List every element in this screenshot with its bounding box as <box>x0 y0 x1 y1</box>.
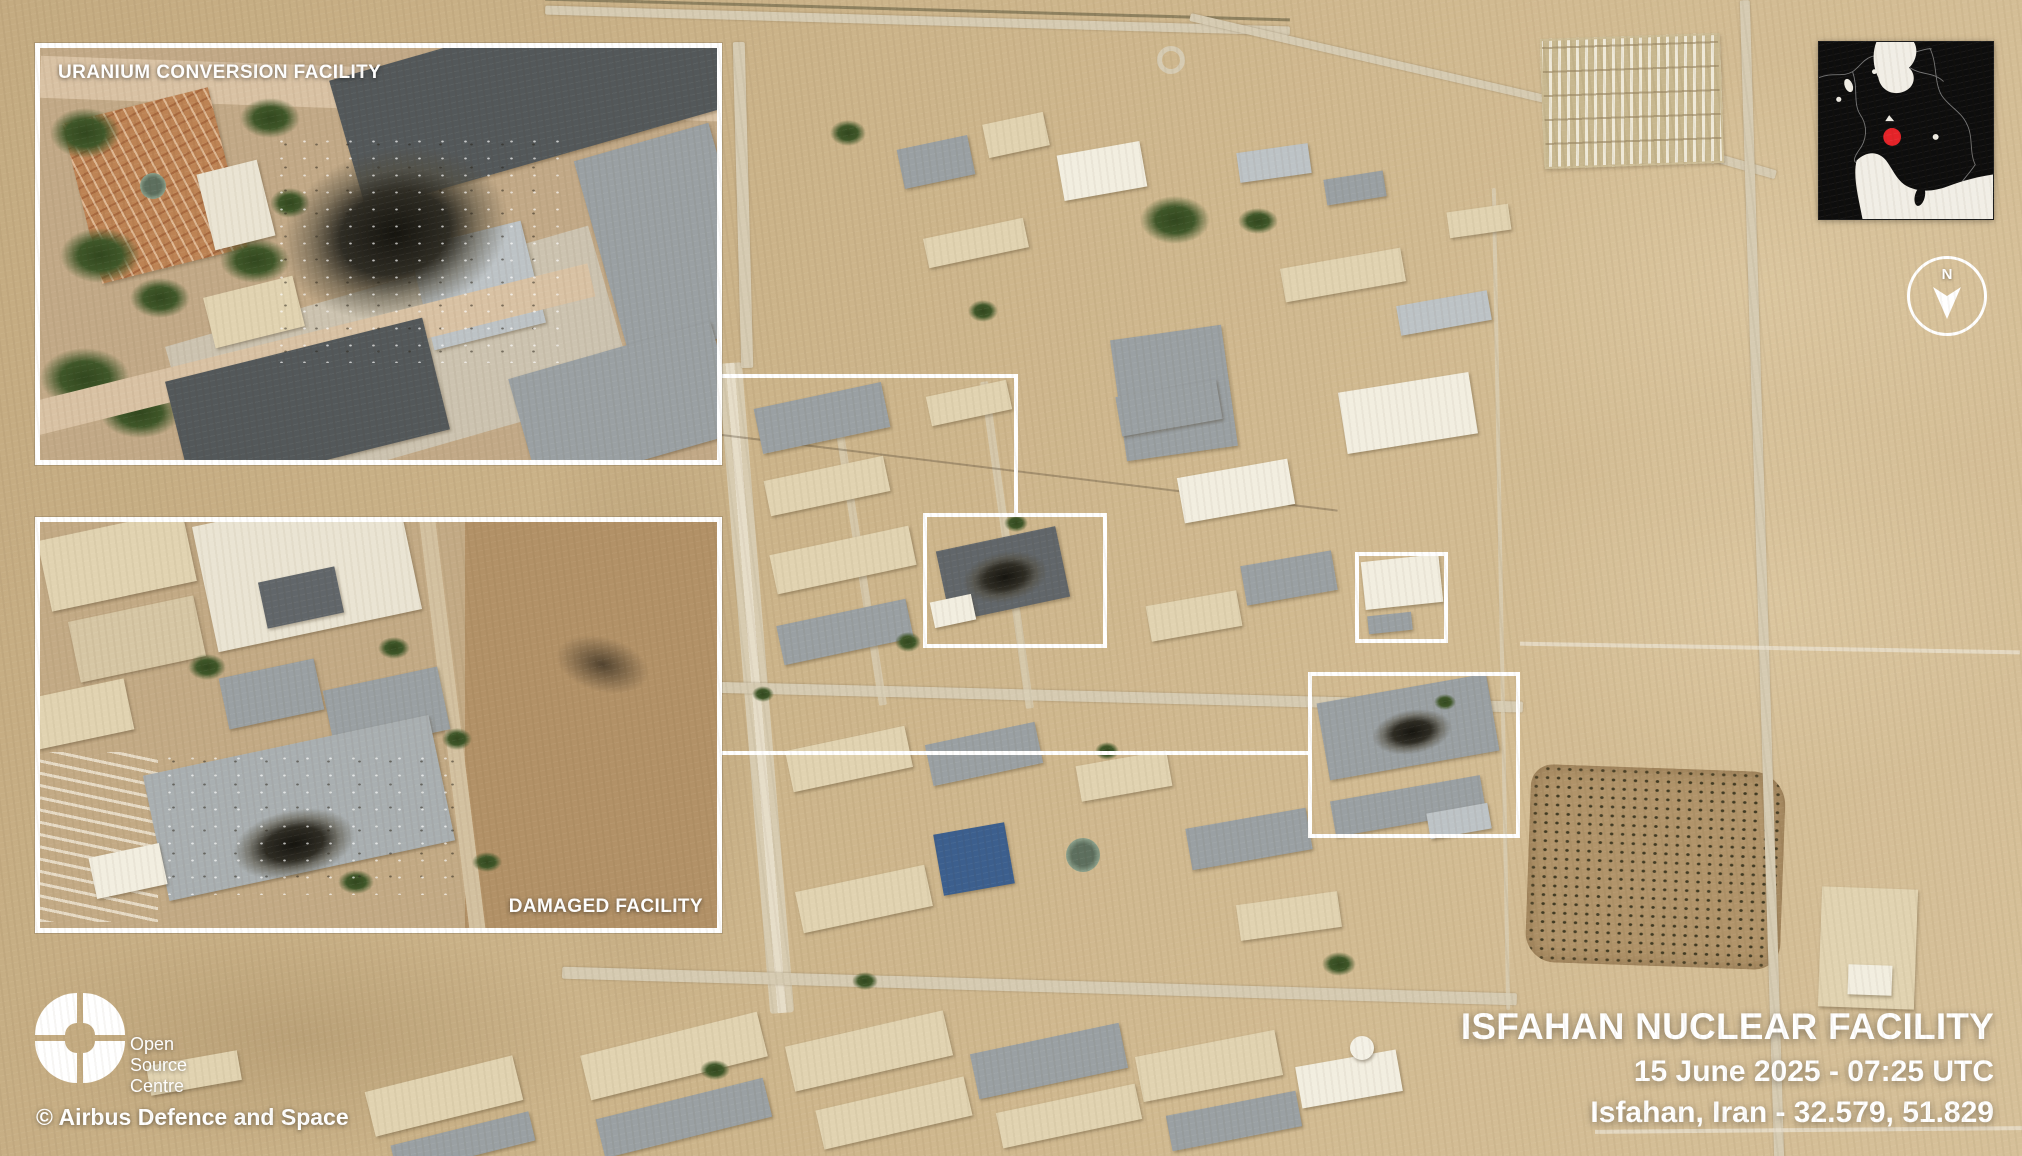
building-shape <box>923 218 1029 269</box>
building-shape <box>785 1010 953 1091</box>
vegetation-shape <box>1238 208 1278 234</box>
vegetation-shape <box>752 686 774 702</box>
inset-damaged-facility-image <box>40 522 717 928</box>
vegetation-shape <box>188 654 226 680</box>
isfahan-location-dot <box>1883 128 1901 146</box>
building-shape <box>982 112 1050 158</box>
vegetation-shape <box>50 108 120 158</box>
building-shape <box>815 1076 972 1149</box>
open-source-centre-wordmark: Open Source Centre <box>130 1034 187 1097</box>
building-shape <box>1323 170 1386 205</box>
building-shape <box>776 599 913 666</box>
iran-locator-map <box>1818 41 1994 220</box>
vegetation-shape <box>830 120 866 146</box>
debris-scatter-shape <box>158 750 458 895</box>
inset-damaged-facility: DAMAGED FACILITY <box>35 517 722 933</box>
building-shape <box>897 135 976 189</box>
vegetation-shape <box>968 300 998 322</box>
building-shape <box>1240 550 1338 605</box>
vegetation-shape <box>442 728 472 750</box>
vegetation-shape <box>130 278 190 318</box>
vegetation-shape <box>240 98 300 138</box>
building-shape <box>1135 1030 1283 1102</box>
capture-datetime: 15 June 2025 - 07:25 UTC <box>1461 1055 1994 1089</box>
highlight-rect-damaged-warehouse <box>1308 672 1520 838</box>
building-shape <box>795 865 933 934</box>
building-shape <box>1076 750 1173 801</box>
building-shape <box>933 822 1015 896</box>
building-shape <box>769 526 916 595</box>
vegetation-shape <box>700 1060 730 1080</box>
open-source-centre-logo-icon <box>34 988 126 1086</box>
title-block: ISFAHAN NUCLEAR FACILITY 15 June 2025 - … <box>1461 1006 1994 1130</box>
building-shape <box>1166 1091 1302 1152</box>
pond-shape <box>1066 838 1100 872</box>
inset-label-uranium-conversion: URANIUM CONVERSION FACILITY <box>58 62 381 84</box>
roundabout-shape <box>1157 46 1185 74</box>
inset-connector-line-top-horizontal <box>722 374 1018 378</box>
building-shape <box>1280 248 1406 303</box>
building-shape <box>1057 141 1148 201</box>
building-shape <box>1185 808 1312 871</box>
parking-lot-shape <box>1540 33 1724 169</box>
inset-uranium-conversion-image <box>40 48 717 460</box>
building-shape <box>970 1023 1128 1100</box>
building-shape <box>785 726 913 792</box>
iran-locator-map-graphic <box>1819 42 1993 219</box>
vegetation-shape <box>1140 196 1210 244</box>
building-shape <box>40 678 134 749</box>
vegetation-shape <box>472 852 502 872</box>
building-shape <box>1295 1049 1403 1108</box>
vegetation-shape <box>852 972 878 990</box>
field-shape <box>465 522 717 928</box>
building-shape <box>1847 964 1892 996</box>
building-shape <box>1177 459 1295 524</box>
facility-title: ISFAHAN NUCLEAR FACILITY <box>1461 1006 1994 1048</box>
north-arrow-icon <box>1910 259 1984 333</box>
vegetation-shape <box>378 637 410 659</box>
storage-tank-shape <box>1350 1036 1374 1060</box>
inset-connector-line-bottom <box>722 751 1312 755</box>
vegetation-shape <box>60 228 140 283</box>
building-shape <box>68 595 206 682</box>
building-shape <box>926 380 1012 426</box>
building-shape <box>40 522 197 612</box>
building-shape <box>764 456 891 517</box>
logo-word-centre: Centre <box>130 1076 187 1097</box>
inset-label-damaged-facility: DAMAGED FACILITY <box>509 896 703 918</box>
highlight-rect-small <box>1355 552 1448 643</box>
pond-shape <box>140 173 166 199</box>
inset-connector-line-top-vertical <box>1014 374 1018 517</box>
logo-word-source: Source <box>130 1055 187 1076</box>
building-shape <box>1236 143 1311 183</box>
logo-word-open: Open <box>130 1034 187 1055</box>
imagery-copyright: © Airbus Defence and Space <box>36 1104 349 1131</box>
satellite-annotation-graphic: URANIUM CONVERSION FACILITY DAMAGED FACI… <box>0 0 2022 1156</box>
highlight-rect-center-damaged-building <box>923 513 1107 648</box>
location-coordinates: Isfahan, Iran - 32.579, 51.829 <box>1461 1096 1994 1130</box>
vegetation-shape <box>1322 952 1356 976</box>
inset-uranium-conversion-facility: URANIUM CONVERSION FACILITY <box>35 43 722 465</box>
debris-scatter-shape <box>270 133 560 363</box>
building-shape <box>1146 590 1243 641</box>
shrub-field-shape <box>1525 764 1787 971</box>
building-shape <box>219 658 325 729</box>
building-shape <box>996 1084 1142 1149</box>
vegetation-shape <box>895 632 921 652</box>
compass: N <box>1907 256 1987 336</box>
building-shape <box>1236 891 1342 941</box>
